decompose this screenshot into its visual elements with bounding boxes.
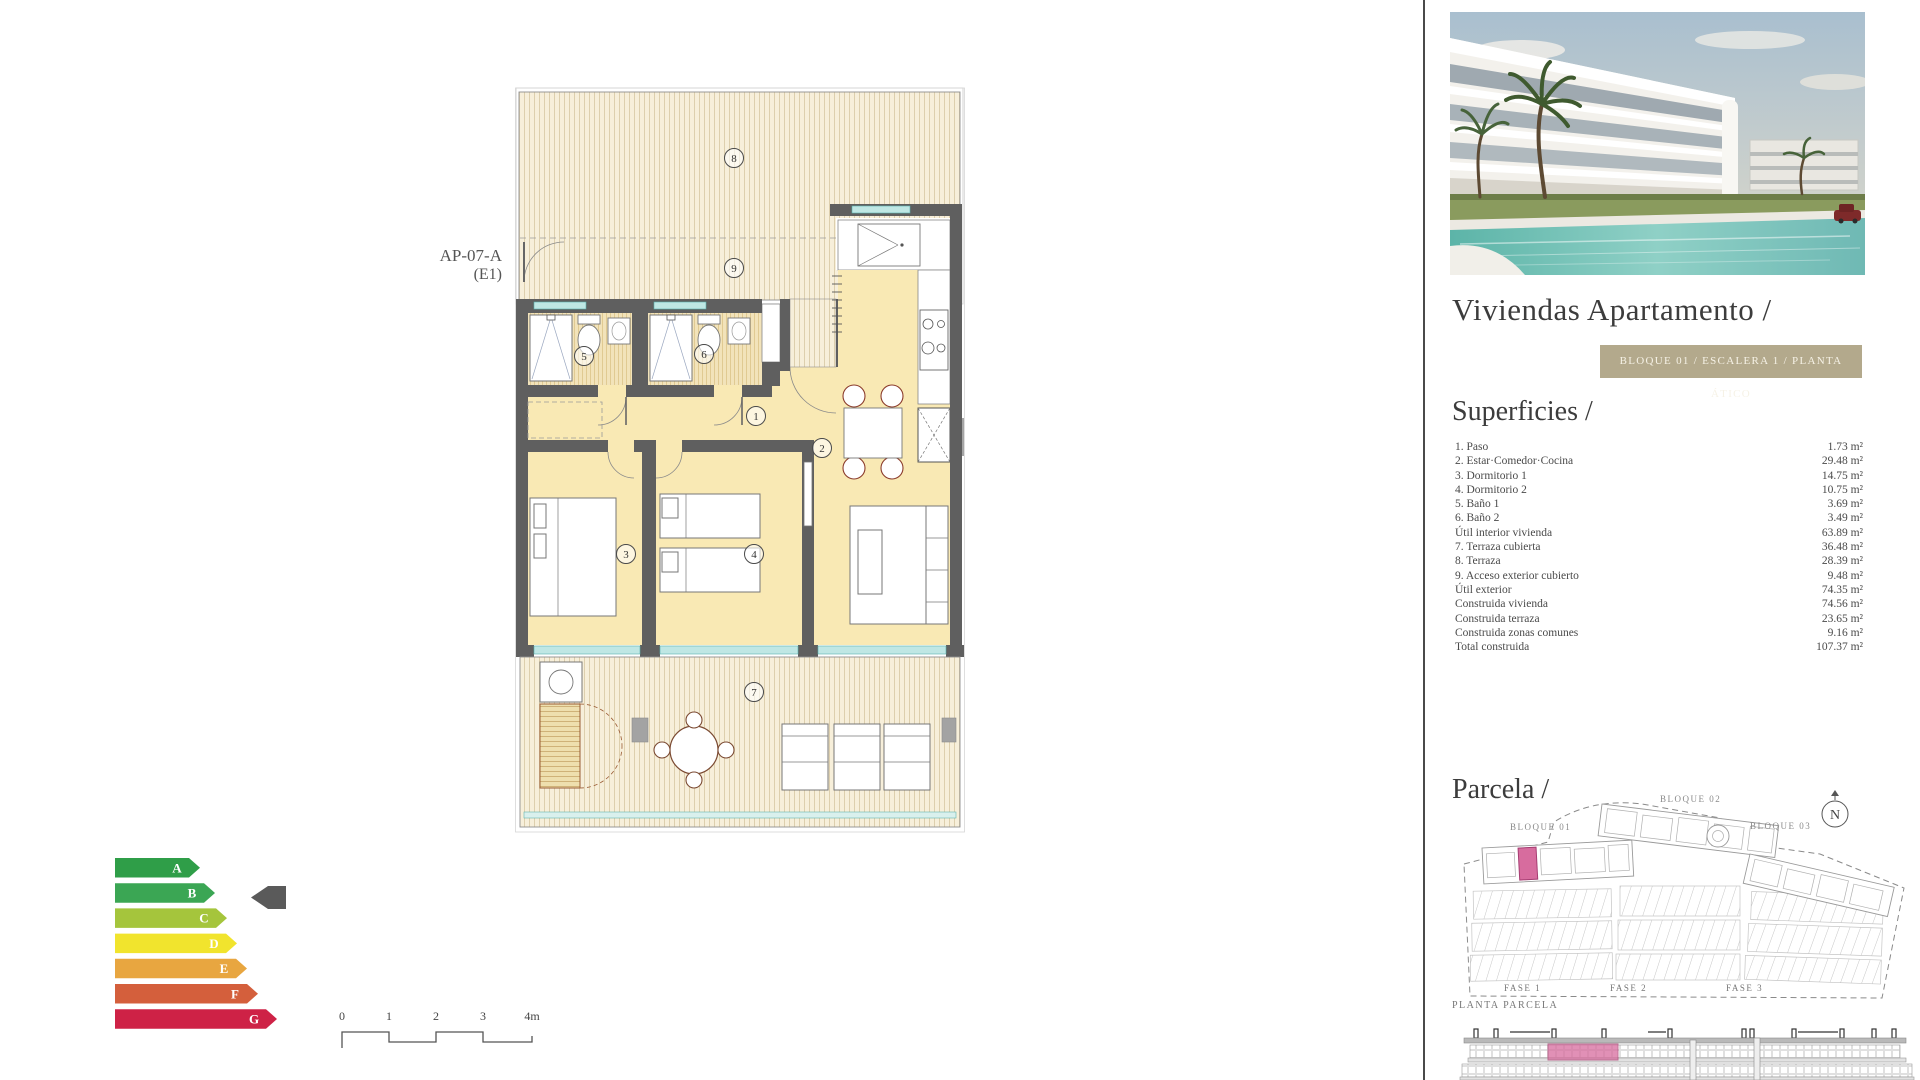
superficies-row-label: Construida zonas comunes bbox=[1455, 627, 1578, 641]
superficies-row: 4. Dormitorio 2 10.75 m² bbox=[1455, 484, 1863, 498]
room-label-1: 1 bbox=[753, 411, 759, 423]
room-label-4: 4 bbox=[751, 549, 757, 561]
elevation-drawing bbox=[1452, 1026, 1920, 1080]
unit-code: AP-07-A bbox=[396, 246, 502, 266]
superficies-row-value: 63.89 m² bbox=[1822, 527, 1863, 541]
superficies-row: 2. Estar·Comedor·Cocina 29.48 m² bbox=[1455, 455, 1863, 469]
scale-tick-3: 3 bbox=[480, 1009, 486, 1023]
superficies-row: Construida vivienda 74.56 m² bbox=[1455, 598, 1863, 612]
superficies-row-value: 29.48 m² bbox=[1822, 455, 1863, 469]
superficies-row-value: 74.35 m² bbox=[1822, 584, 1863, 598]
energy-indicator bbox=[251, 886, 286, 909]
superficies-row-label: 4. Dormitorio 2 bbox=[1455, 484, 1527, 498]
scale-tick-0: 0 bbox=[339, 1009, 345, 1023]
superficies-row-value: 36.48 m² bbox=[1822, 541, 1863, 555]
superficies-row-value: 74.56 m² bbox=[1822, 598, 1863, 612]
room-label-5: 5 bbox=[581, 351, 587, 363]
sofa bbox=[850, 506, 948, 624]
location-badge: BLOQUE 01 / ESCALERA 1 / PLANTA ÁTICO bbox=[1600, 345, 1862, 378]
superficies-row-value: 3.69 m² bbox=[1828, 498, 1863, 512]
stove bbox=[920, 310, 948, 370]
superficies-row-label: 3. Dormitorio 1 bbox=[1455, 470, 1527, 484]
room-label-9: 9 bbox=[731, 263, 737, 275]
block-01-label: BLOQUE 01 bbox=[1510, 822, 1571, 832]
sliding-door bbox=[804, 462, 812, 526]
superficies-row-label: 8. Terraza bbox=[1455, 555, 1501, 569]
energy-grade-letter-B: B bbox=[188, 885, 197, 900]
superficies-row-label: Útil exterior bbox=[1455, 584, 1512, 598]
storage-door bbox=[762, 304, 780, 362]
block-03-label: BLOQUE 03 bbox=[1750, 821, 1811, 831]
plan-sheet-page: { "plan": { "unit_label": "AP-07-A", "un… bbox=[0, 0, 1920, 1080]
superficies-row-value: 9.16 m² bbox=[1828, 627, 1863, 641]
superficies-row: 9. Acceso exterior cubierto 9.48 m² bbox=[1455, 570, 1863, 584]
superficies-row: 3. Dormitorio 1 14.75 m² bbox=[1455, 470, 1863, 484]
toilet-2 bbox=[698, 315, 720, 324]
scale-tick-2: 2 bbox=[433, 1009, 439, 1023]
floor-plan: 8 9 5 6 1 2 3 4 7 bbox=[514, 86, 966, 834]
roof-chimneys bbox=[1474, 1029, 1896, 1038]
superficies-heading: Superficies / bbox=[1452, 396, 1593, 428]
energy-grade-letter-G: G bbox=[249, 1011, 259, 1026]
block-01 bbox=[1482, 840, 1634, 884]
shower-2 bbox=[650, 315, 692, 381]
superficies-row-value: 1.73 m² bbox=[1828, 441, 1863, 455]
superficies-row-value: 28.39 m² bbox=[1822, 555, 1863, 569]
superficies-row: 6. Baño 2 3.49 m² bbox=[1455, 512, 1863, 526]
washing-machine bbox=[540, 662, 582, 702]
scale-bar-line bbox=[342, 1032, 532, 1048]
superficies-row: 7. Terraza cubierta 36.48 m² bbox=[1455, 541, 1863, 555]
bed-double bbox=[530, 498, 616, 616]
coffee-table bbox=[858, 530, 882, 594]
superficies-row: 5. Baño 1 3.69 m² bbox=[1455, 498, 1863, 512]
parcel-map: BLOQUE 01 BLOQUE 02 BLOQUE 03 FASE 1 FAS… bbox=[1452, 790, 1914, 1010]
superficies-row-label: 7. Terraza cubierta bbox=[1455, 541, 1541, 555]
pillar bbox=[632, 718, 648, 742]
superficies-row: Construida terraza 23.65 m² bbox=[1455, 613, 1863, 627]
energy-grade-letter-F: F bbox=[231, 986, 239, 1001]
fase-2-label: FASE 2 bbox=[1610, 983, 1647, 993]
superficies-table: 1. Paso 1.73 m² 2. Estar·Comedor·Cocina … bbox=[1455, 441, 1863, 655]
north-label: N bbox=[1830, 808, 1840, 823]
scale-tick-1: 1 bbox=[386, 1009, 392, 1023]
page-title: Viviendas Apartamento / bbox=[1452, 292, 1772, 328]
energy-grade-letter-C: C bbox=[199, 911, 208, 926]
plaza-circle bbox=[1707, 825, 1729, 847]
highlighted-unit bbox=[1518, 847, 1538, 880]
room-label-7: 7 bbox=[751, 687, 757, 699]
shower-1 bbox=[530, 315, 572, 381]
sun-loungers bbox=[782, 724, 930, 790]
superficies-row: 1. Paso 1.73 m² bbox=[1455, 441, 1863, 455]
terrace-closet bbox=[540, 704, 580, 788]
toilet-1 bbox=[578, 315, 600, 324]
block-02-label: BLOQUE 02 bbox=[1660, 794, 1721, 804]
room-label-6: 6 bbox=[701, 349, 707, 361]
superficies-row-label: Construida vivienda bbox=[1455, 598, 1548, 612]
energy-grade-B bbox=[115, 883, 215, 903]
energy-grade-letter-E: E bbox=[220, 961, 229, 976]
fase-1-label: FASE 1 bbox=[1504, 983, 1541, 993]
superficies-row-value: 14.75 m² bbox=[1822, 470, 1863, 484]
superficies-row-label: 9. Acceso exterior cubierto bbox=[1455, 570, 1579, 584]
superficies-row-value: 10.75 m² bbox=[1822, 484, 1863, 498]
superficies-row-label: 1. Paso bbox=[1455, 441, 1488, 455]
scale-bar: 0 1 2 3 4m bbox=[336, 1006, 551, 1052]
roof-slab bbox=[1464, 1038, 1906, 1043]
north-arrow-icon: N bbox=[1822, 790, 1848, 827]
building-render-photo bbox=[1450, 12, 1865, 275]
energy-rating-chart: ABCDEFG bbox=[110, 858, 320, 1048]
superficies-row-value: 9.48 m² bbox=[1828, 570, 1863, 584]
highlighted-unit-elevation bbox=[1548, 1044, 1618, 1060]
superficies-row: 8. Terraza 28.39 m² bbox=[1455, 555, 1863, 569]
superficies-row-label: Total construida bbox=[1455, 641, 1529, 655]
map-caption: PLANTA PARCELA bbox=[1452, 1000, 1558, 1011]
energy-grade-A bbox=[115, 858, 200, 878]
panel-divider bbox=[1423, 0, 1425, 1080]
superficies-row-label: Construida terraza bbox=[1455, 613, 1540, 627]
energy-grade-letter-D: D bbox=[209, 936, 218, 951]
energy-grade-letter-A: A bbox=[172, 860, 182, 875]
superficies-row: Útil interior vivienda 63.89 m² bbox=[1455, 527, 1863, 541]
scale-tick-4: 4m bbox=[524, 1009, 540, 1023]
terrace bbox=[520, 657, 960, 827]
superficies-row-label: 2. Estar·Comedor·Cocina bbox=[1455, 455, 1573, 469]
superficies-row-label: Útil interior vivienda bbox=[1455, 527, 1552, 541]
room-label-8: 8 bbox=[731, 153, 737, 165]
glass-balustrade bbox=[524, 812, 956, 818]
pillar bbox=[942, 718, 956, 742]
superficies-row: Útil exterior 74.35 m² bbox=[1455, 584, 1863, 598]
fase-3-label: FASE 3 bbox=[1726, 983, 1763, 993]
superficies-row-label: 5. Baño 1 bbox=[1455, 498, 1499, 512]
superficies-row-label: 6. Baño 2 bbox=[1455, 512, 1499, 526]
unit-label: AP-07-A (E1) bbox=[396, 246, 502, 284]
superficies-row-value: 3.49 m² bbox=[1828, 512, 1863, 526]
superficies-row: Total construida 107.37 m² bbox=[1455, 641, 1863, 655]
superficies-row: Construida zonas comunes 9.16 m² bbox=[1455, 627, 1863, 641]
superficies-row-value: 23.65 m² bbox=[1822, 613, 1863, 627]
energy-grade-C bbox=[115, 908, 227, 928]
kitchen-sink bbox=[858, 224, 920, 266]
room-label-2: 2 bbox=[819, 443, 825, 455]
room-label-3: 3 bbox=[623, 549, 629, 561]
superficies-row-value: 107.37 m² bbox=[1816, 641, 1863, 655]
unit-entrance: (E1) bbox=[396, 266, 502, 284]
